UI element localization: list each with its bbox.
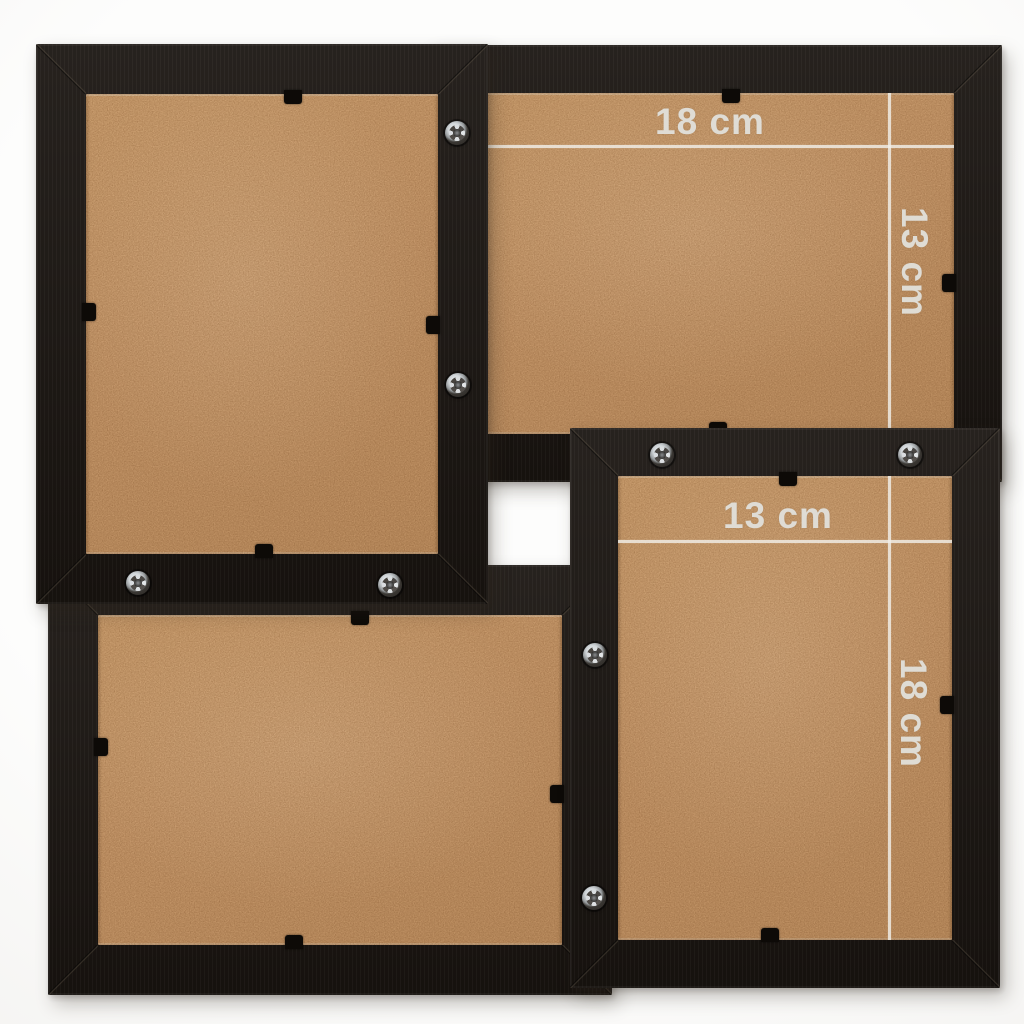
screw-icon <box>582 886 606 910</box>
dimension-line-width <box>618 540 952 543</box>
screw-icon <box>650 443 674 467</box>
dimension-line-height <box>888 93 891 434</box>
retainer-clip <box>779 472 797 486</box>
screw-icon <box>445 121 469 145</box>
dimension-label-width: 18 cm <box>655 101 765 143</box>
dimension-label-height: 18 cm <box>892 658 934 768</box>
retainer-clip <box>550 785 564 803</box>
dimension-label-width: 13 cm <box>723 495 833 537</box>
photo-frame-top-left <box>36 44 488 604</box>
photo-frame-bottom-right: 13 cm 18 cm <box>570 428 1000 988</box>
retainer-clip <box>940 696 954 714</box>
backing-board <box>86 94 438 554</box>
miter-seam <box>438 554 488 604</box>
retainer-clip <box>82 303 96 321</box>
screw-icon <box>126 571 150 595</box>
retainer-clip <box>761 928 779 942</box>
miter-seam <box>952 428 1000 476</box>
dimension-line-width <box>477 145 954 148</box>
miter-seam <box>570 940 618 988</box>
photo-frame-top-right: 18 cm 13 cm <box>429 45 1002 482</box>
retainer-clip <box>94 738 108 756</box>
screw-icon <box>378 573 402 597</box>
dimension-label-height: 13 cm <box>893 207 935 317</box>
screw-icon <box>898 443 922 467</box>
miter-seam <box>954 45 1002 93</box>
retainer-clip <box>942 274 956 292</box>
retainer-clip <box>255 544 273 558</box>
photo-frame-bottom-left <box>48 565 612 995</box>
retainer-clip <box>426 316 440 334</box>
miter-seam <box>36 44 86 94</box>
miter-seam <box>36 554 86 604</box>
backing-board: 18 cm 13 cm <box>477 93 954 434</box>
miter-seam <box>570 428 618 476</box>
mdf-texture <box>86 94 438 554</box>
mdf-texture <box>98 615 562 945</box>
backing-board: 13 cm 18 cm <box>618 476 952 940</box>
screw-icon <box>446 373 470 397</box>
miter-seam <box>952 940 1000 988</box>
backing-board <box>98 615 562 945</box>
retainer-clip <box>722 89 740 103</box>
retainer-clip <box>284 90 302 104</box>
dimension-line-height <box>888 476 891 940</box>
miter-seam <box>438 44 488 94</box>
miter-seam <box>48 945 98 995</box>
retainer-clip <box>285 935 303 949</box>
product-photo-collage-frame: 18 cm 13 cm <box>0 0 1024 1024</box>
retainer-clip <box>351 611 369 625</box>
screw-icon <box>583 643 607 667</box>
